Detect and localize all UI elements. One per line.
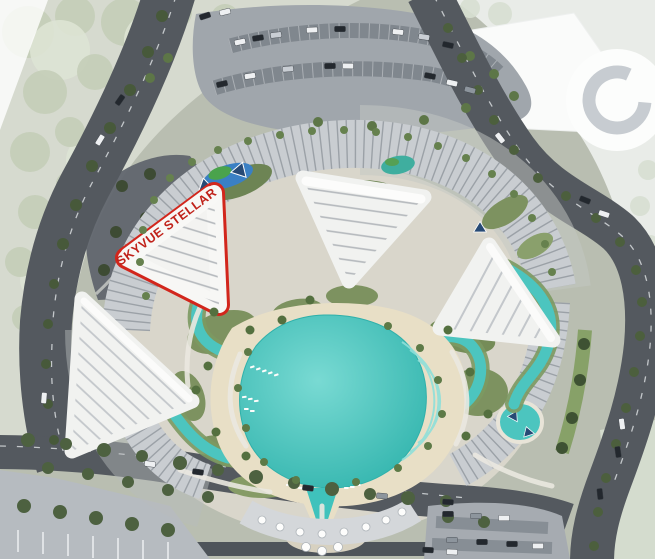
masterplan-render: SKYVUE STELLAR bbox=[0, 0, 655, 559]
site-plan-viewport: SKYVUE STELLAR bbox=[0, 0, 655, 559]
